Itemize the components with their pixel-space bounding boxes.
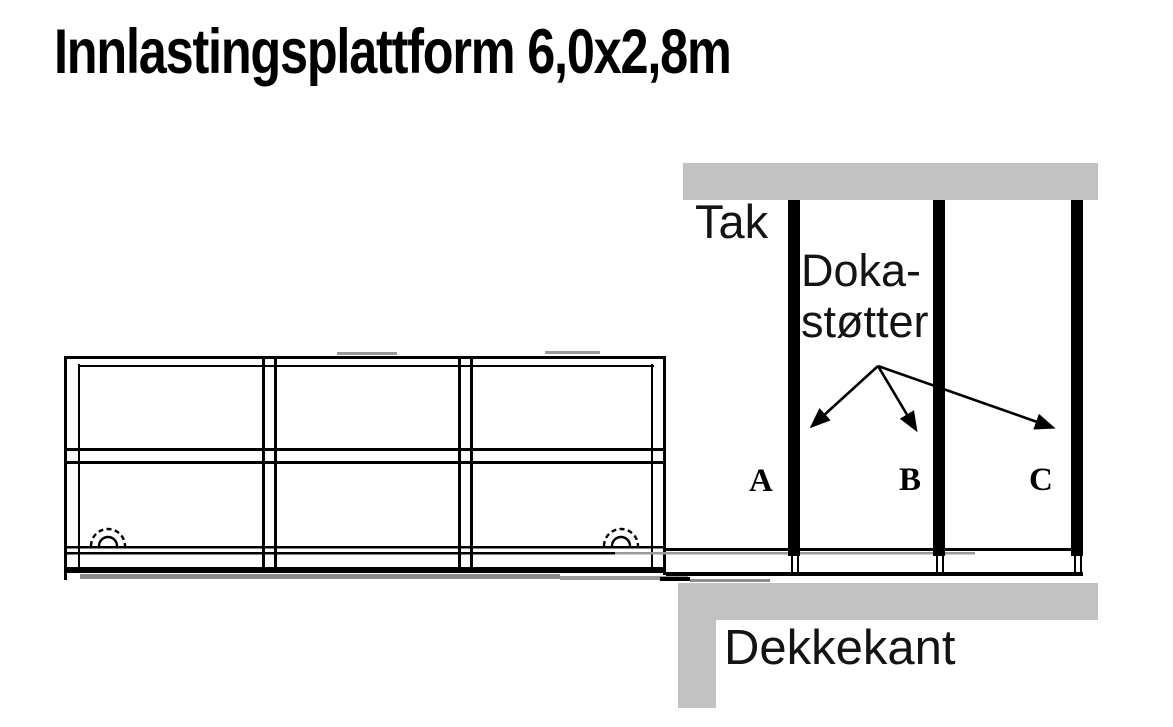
prop-c-foot-right bbox=[1080, 556, 1082, 575]
arrow-to-prop-b bbox=[878, 366, 909, 418]
lower-deck-line-top bbox=[66, 546, 663, 549]
prop-b-letter: B bbox=[899, 463, 921, 498]
frame-inner-right bbox=[651, 364, 653, 570]
bay-divider-1-left bbox=[262, 359, 265, 570]
left-wheel-inner-arc bbox=[99, 537, 117, 546]
frame-bottom-edge bbox=[64, 567, 666, 573]
bay-divider-1-right bbox=[274, 359, 277, 570]
mid-rail-top bbox=[66, 448, 663, 451]
prop-b-foot-left bbox=[936, 556, 938, 575]
deck-edge-label: Dekkekant bbox=[724, 623, 956, 674]
frame-top-edge bbox=[64, 356, 666, 359]
prop-a-bar bbox=[788, 200, 800, 556]
doka-props-label-line1: Doka- bbox=[801, 245, 929, 296]
platform-frame bbox=[64, 351, 688, 580]
frame-top-smudge-1 bbox=[337, 352, 397, 355]
prop-c-bar bbox=[1071, 200, 1083, 556]
frame-right-edge bbox=[663, 356, 666, 575]
prop-a-foot-left bbox=[791, 556, 793, 575]
doka-props-label: Doka- støtter bbox=[801, 245, 929, 347]
prop-b-foot-right bbox=[942, 556, 944, 575]
arrow-to-prop-a bbox=[822, 366, 878, 417]
diagram-canvas: Innlastingsplattform 6,0x2,8m bbox=[0, 0, 1173, 727]
prop-c-foot-left bbox=[1074, 556, 1076, 575]
deck-shadow-black bbox=[660, 577, 690, 581]
lower-deck-line-bottom bbox=[66, 552, 663, 555]
prop-a-letter: A bbox=[749, 464, 773, 499]
mid-rail-bottom bbox=[66, 461, 663, 464]
deck-bottom-line bbox=[666, 572, 1083, 576]
deck-shadow-gray bbox=[690, 579, 770, 582]
arrow-to-prop-c bbox=[878, 366, 1040, 423]
bay-divider-2-right bbox=[470, 359, 473, 570]
roof-label: Tak bbox=[695, 197, 768, 246]
prop-b-bar bbox=[933, 200, 945, 556]
frame-inner-left bbox=[78, 364, 80, 570]
platform-diagram bbox=[0, 0, 1173, 727]
bay-divider-2-left bbox=[458, 359, 461, 570]
frame-inner-top bbox=[78, 365, 654, 367]
wheels bbox=[91, 529, 638, 546]
annotation-arrows bbox=[822, 366, 1040, 423]
deck-top-line bbox=[666, 548, 1083, 551]
doka-props-label-line2: støtter bbox=[801, 296, 929, 347]
platform-shadow-left bbox=[80, 574, 560, 579]
right-wheel-inner-arc bbox=[612, 537, 630, 546]
frame-top-smudge-2 bbox=[545, 351, 600, 354]
prop-a-foot-right bbox=[797, 556, 799, 575]
prop-c-letter: C bbox=[1029, 463, 1053, 498]
